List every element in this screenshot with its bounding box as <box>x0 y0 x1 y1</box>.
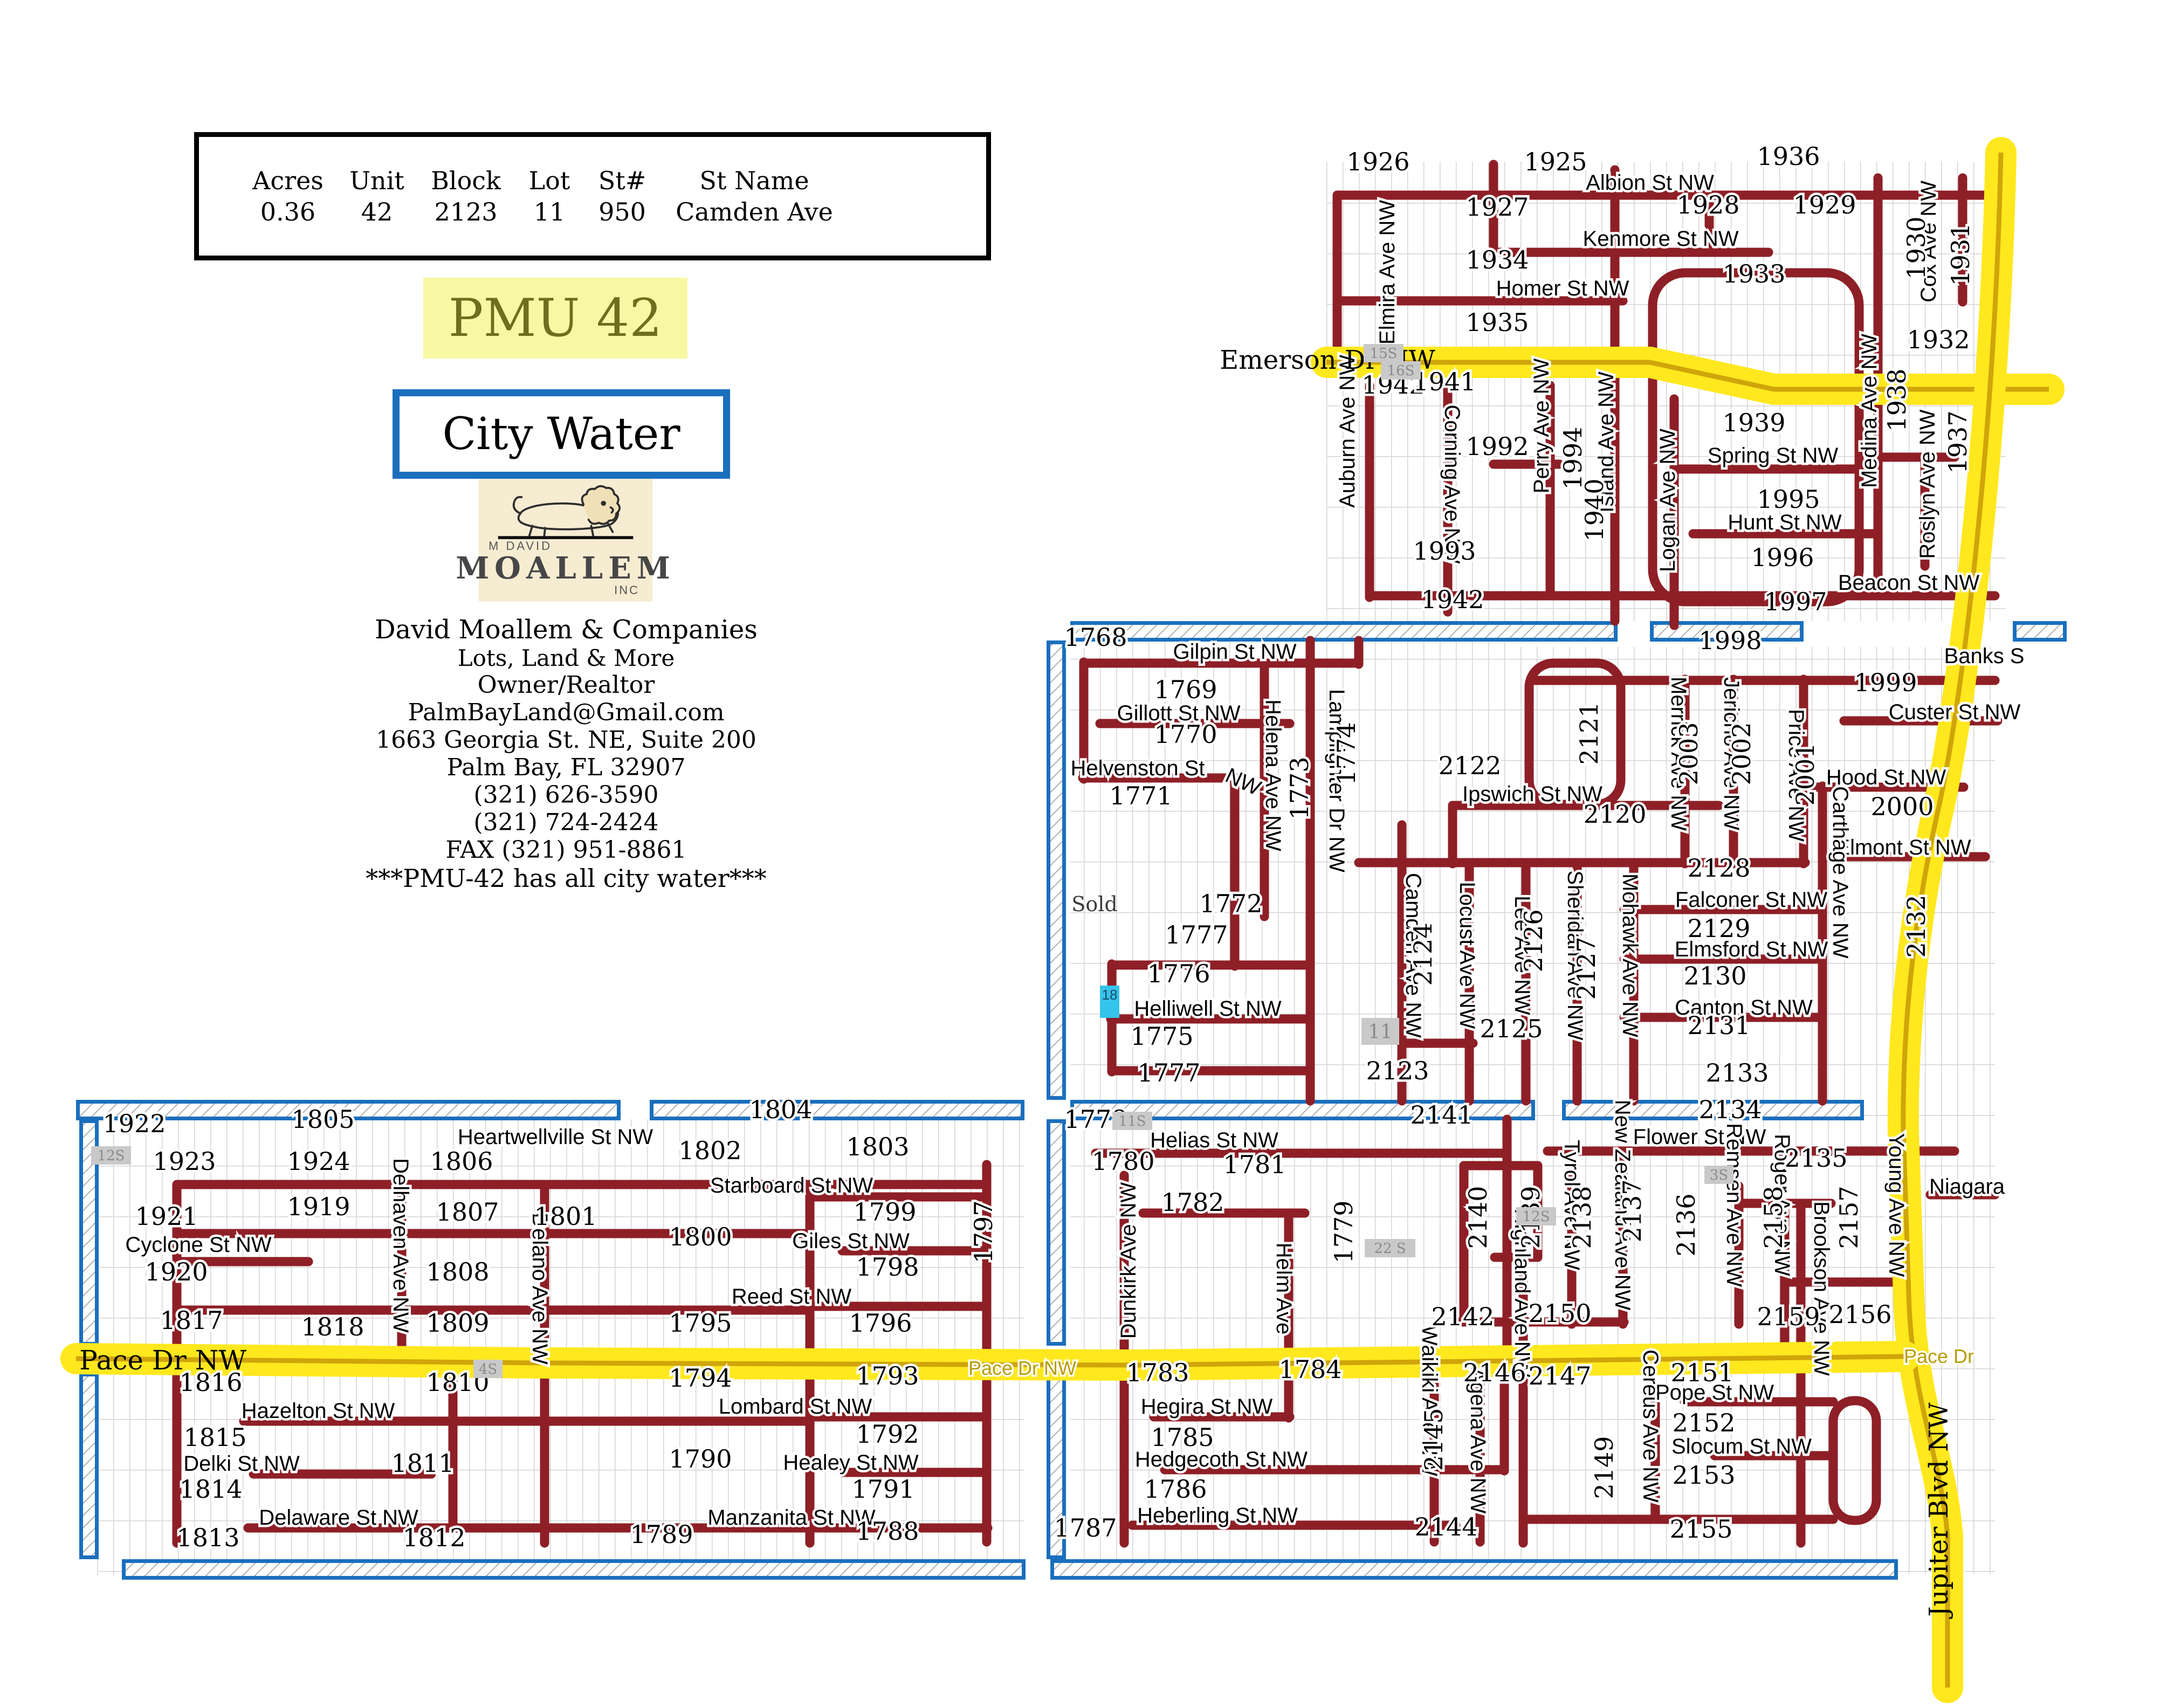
block-number: 1813 <box>176 1523 239 1552</box>
block-number: 1807 <box>436 1197 499 1227</box>
plat-map: Albion St NWKenmore St NWHomer St NWSpri… <box>0 0 2174 1708</box>
street-label: Helias St NW <box>1150 1128 1278 1152</box>
street-label: Brookson Ave NW <box>1810 1201 1833 1376</box>
block-number: 1928 <box>1676 190 1739 219</box>
block-number: 1919 <box>287 1192 350 1221</box>
block-number: 1812 <box>402 1523 465 1552</box>
block-number: 1920 <box>145 1257 208 1286</box>
street-label: Young Ave NW <box>1884 1133 1908 1277</box>
block-number: 2137 <box>1618 1179 1647 1242</box>
block-number: 1789 <box>630 1520 693 1549</box>
street-label: Starboard St NW <box>710 1174 873 1197</box>
block-number: 2120 <box>1583 800 1646 829</box>
block-number: 1779 <box>1329 1200 1358 1263</box>
street-label: Helliwell St NW <box>1134 997 1282 1021</box>
street-label: Logan Ave NW <box>1656 429 1680 572</box>
block-number: 2151 <box>1670 1358 1733 1387</box>
block-number: 1805 <box>291 1105 354 1134</box>
block-number: 1921 <box>135 1202 198 1231</box>
block-number: 2145 <box>1419 1408 1448 1471</box>
block-number: 1802 <box>678 1136 741 1165</box>
block-number: 2132 <box>1902 894 1931 958</box>
block-number: 1801 <box>534 1202 597 1231</box>
block-number: 2156 <box>1828 1300 1891 1329</box>
block-number: 2127 <box>1572 936 1601 1000</box>
block-number: 1934 <box>1466 245 1529 274</box>
block-number: 1930 <box>1902 216 1931 279</box>
block-number: 1999 <box>1854 668 1917 697</box>
block-number: 2133 <box>1705 1058 1769 1087</box>
block-number: 1797 <box>969 1200 998 1263</box>
block-number: 1940 <box>1580 478 1609 541</box>
block-number: 1936 <box>1757 142 1820 171</box>
block-number: 2141 <box>1410 1100 1473 1130</box>
block-number: 1937 <box>1943 410 1972 473</box>
block-number: 2140 <box>1463 1186 1492 1249</box>
block-number: 1782 <box>1161 1188 1224 1217</box>
block-number: 2131 <box>1687 1011 1750 1040</box>
block-number: 2129 <box>1687 914 1750 943</box>
block-number: 1997 <box>1764 587 1827 616</box>
street-label: Helm Ave <box>1272 1243 1296 1334</box>
block-number: 2128 <box>1687 853 1750 883</box>
block-number: 1783 <box>1126 1358 1189 1387</box>
block-number: 1784 <box>1278 1355 1341 1384</box>
block-number: 1809 <box>426 1308 489 1338</box>
block-number: 1772 <box>1199 889 1262 918</box>
block-number: 1929 <box>1793 190 1856 219</box>
street-label: Spring St NW <box>1708 444 1839 467</box>
street-label: Locust Ave NW <box>1455 882 1479 1029</box>
block-number: 1769 <box>1154 675 1217 704</box>
block-number: 2124 <box>1408 922 1437 986</box>
block-number: 1925 <box>1524 147 1587 176</box>
block-number: 1788 <box>856 1517 919 1546</box>
block-number: 2138 <box>1567 1186 1597 1249</box>
block-number: 1799 <box>853 1197 916 1227</box>
block-number: 1800 <box>669 1222 732 1251</box>
highway-inline-label: Pace Dr NW <box>968 1357 1076 1379</box>
block-number: 2149 <box>1590 1436 1619 1499</box>
block-number: 1798 <box>856 1252 919 1282</box>
street-label: Beacon St NW <box>1838 571 1980 595</box>
street-label: Carthage Ave NW <box>1828 786 1852 959</box>
highway-label: Jupiter Blvd NW <box>1924 1402 1954 1620</box>
sold-marker-text: 16S <box>1387 363 1415 379</box>
block-number: 1998 <box>1698 626 1762 655</box>
block-number: 1770 <box>1154 720 1217 749</box>
block-number: 1773 <box>1285 756 1314 819</box>
block-number: 1777 <box>1137 1058 1200 1087</box>
street-label: Helena Ave NW <box>1261 699 1285 851</box>
sold-marker-text: 22 S <box>1374 1241 1406 1257</box>
block-number: 2134 <box>1698 1095 1762 1124</box>
street-label: Agena Ave NW <box>1466 1368 1490 1514</box>
block-number: 1781 <box>1223 1150 1286 1179</box>
block-number: 2142 <box>1431 1302 1494 1331</box>
block-number: 1939 <box>1722 408 1785 437</box>
sold-marker-text: 12S <box>98 1148 125 1164</box>
sold-marker-text: 15S <box>1370 346 1398 362</box>
block-number: 2153 <box>1672 1461 1735 1490</box>
street-label: Kenmore St NW <box>1583 227 1739 251</box>
street-label: Heartwellville St NW <box>458 1125 653 1149</box>
block-number: 1803 <box>846 1132 909 1161</box>
block-number: 1818 <box>301 1312 364 1341</box>
block-number: 1808 <box>426 1257 489 1286</box>
street-label: Cereus Ave NW <box>1639 1349 1662 1503</box>
block-number: 1922 <box>102 1109 166 1138</box>
block-number: 1995 <box>1757 485 1820 514</box>
street-label: Custer St NW <box>1889 700 2021 724</box>
block-number: 2159 <box>1757 1302 1820 1331</box>
block-number: 1935 <box>1466 308 1529 337</box>
block-number: 1794 <box>669 1363 732 1393</box>
block-number: 1931 <box>1946 223 1975 286</box>
block-number: 2126 <box>1519 909 1548 972</box>
street-label: Hazelton St NW <box>242 1399 395 1423</box>
street-label: Reed St NW <box>732 1285 852 1308</box>
street-label: Delaware St NW <box>259 1506 418 1530</box>
highway-label: Pace Dr NW <box>79 1345 246 1376</box>
block-number: 1774 <box>1332 722 1361 785</box>
block-number: 2150 <box>1528 1299 1591 1328</box>
block-number: 2152 <box>1672 1408 1735 1437</box>
block-number: 1926 <box>1346 147 1409 176</box>
block-number: 1815 <box>183 1423 246 1452</box>
street-label: Delhaven Ave NW <box>389 1158 412 1333</box>
street-label: Roslyn Ave NW <box>1916 409 1939 559</box>
block-number: 2158 <box>1759 1186 1788 1249</box>
block-number: 2157 <box>1834 1186 1863 1249</box>
block-number: 2144 <box>1414 1512 1477 1541</box>
block-number: 2002 <box>1727 722 1756 785</box>
block-number: 1996 <box>1751 543 1814 572</box>
street-label: Giles St NW <box>792 1229 910 1253</box>
block-number: 1790 <box>669 1444 732 1473</box>
block-number: 2147 <box>1528 1361 1591 1390</box>
block-number: 1777 <box>1165 920 1228 949</box>
street-label: Elmont St NW <box>1835 836 1971 859</box>
block-number: 2155 <box>1669 1514 1732 1544</box>
street-label: Hegira St NW <box>1141 1395 1273 1418</box>
street-label: Slocum St NW <box>1671 1435 1812 1458</box>
block-number: 1791 <box>851 1475 914 1504</box>
block-number: 1932 <box>1907 325 1970 354</box>
sold-marker-text: 4S <box>479 1361 497 1378</box>
block-number: 1927 <box>1466 192 1529 222</box>
street-label: Hunt St NW <box>1728 511 1841 534</box>
street-label: Healey St NW <box>783 1451 918 1475</box>
block-number: 1776 <box>1147 959 1210 988</box>
street-label: Ipswich St NW <box>1462 782 1602 806</box>
block-number: 1942 <box>1421 585 1484 614</box>
sold-marker-text: 12S <box>1523 1209 1550 1225</box>
block-number: 1786 <box>1144 1475 1207 1504</box>
block-number: 1792 <box>856 1420 919 1449</box>
street-label: Auburn Ave NW <box>1336 355 1359 508</box>
highway-inline-label: Pace Dr <box>1904 1345 1974 1367</box>
street-label: Elmira Ave NW <box>1375 200 1399 345</box>
block-number: 2121 <box>1574 701 1604 765</box>
block-number: 1923 <box>153 1147 216 1176</box>
block-number: 1814 <box>179 1475 242 1504</box>
highlighted-lot-number: 18 <box>1102 987 1118 1003</box>
block-number: 2125 <box>1480 1014 1543 1043</box>
block-number: 1993 <box>1413 536 1476 566</box>
street-label: Dunkirk Ave NW <box>1117 1182 1140 1339</box>
block-number: 1924 <box>287 1147 350 1176</box>
street-label: Heberling St NW <box>1137 1504 1298 1527</box>
street-label: Delano Ave NW <box>528 1213 552 1365</box>
street-label: Lombard St NW <box>719 1395 872 1418</box>
sold-label: Sold <box>1071 892 1117 916</box>
block-number: 2135 <box>1784 1144 1847 1173</box>
street-label: Manzanita St NW <box>707 1506 875 1530</box>
block-number: 2003 <box>1674 722 1703 785</box>
block-number: 2000 <box>1870 792 1934 821</box>
block-number: 2122 <box>1438 751 1501 780</box>
block-number: 1992 <box>1466 432 1529 461</box>
street-label: Helvenston St <box>1070 756 1205 780</box>
block-number: 1785 <box>1151 1423 1214 1452</box>
street-label: Homer St NW <box>1496 277 1629 300</box>
block-number: 1780 <box>1091 1147 1154 1176</box>
block-number: 1775 <box>1130 1022 1193 1051</box>
street-label: Cyclone St NW <box>125 1233 271 1257</box>
block-number: 1771 <box>1109 781 1172 810</box>
block-number: 2123 <box>1366 1056 1429 1085</box>
block-number: 2146 <box>1463 1358 1526 1387</box>
street-label: Delki St NW <box>183 1452 300 1476</box>
block-number: 1795 <box>669 1308 732 1338</box>
sold-marker-text: 3S <box>1710 1167 1728 1183</box>
plat-map-page: Acres Unit Block Lot St# St Name 0.36 42… <box>0 0 2174 1708</box>
block-number: 1806 <box>430 1147 493 1176</box>
block-number: 2130 <box>1683 961 1746 990</box>
street-label: Perry Ave NW <box>1530 359 1553 494</box>
street-label: Niagara <box>1929 1175 2005 1199</box>
block-number: 1811 <box>391 1449 454 1478</box>
street-label: Banks S <box>1944 644 2025 668</box>
block-number: 1787 <box>1054 1513 1117 1542</box>
block-number: 1768 <box>1064 623 1127 652</box>
lot-11-number: 11 <box>1368 1021 1393 1043</box>
street-label: Medina Ave NW <box>1857 334 1881 488</box>
street-label: Gilpin St NW <box>1173 640 1297 664</box>
block-number: 1796 <box>849 1308 912 1338</box>
street-label: Remsen Ave NW <box>1722 1123 1746 1287</box>
block-number: 1933 <box>1722 259 1785 288</box>
block-number: 1793 <box>856 1361 919 1390</box>
block-number: 1817 <box>160 1306 223 1335</box>
street-label: Mohawk Ave NW <box>1618 873 1642 1037</box>
block-number: 1938 <box>1882 368 1911 431</box>
sold-marker-text: 11S <box>1119 1113 1146 1130</box>
block-number: 1804 <box>749 1095 812 1124</box>
block-number: 2001 <box>1791 742 1820 805</box>
street-label: Falconer St NW <box>1675 888 1828 912</box>
block-number: 2136 <box>1671 1193 1701 1256</box>
